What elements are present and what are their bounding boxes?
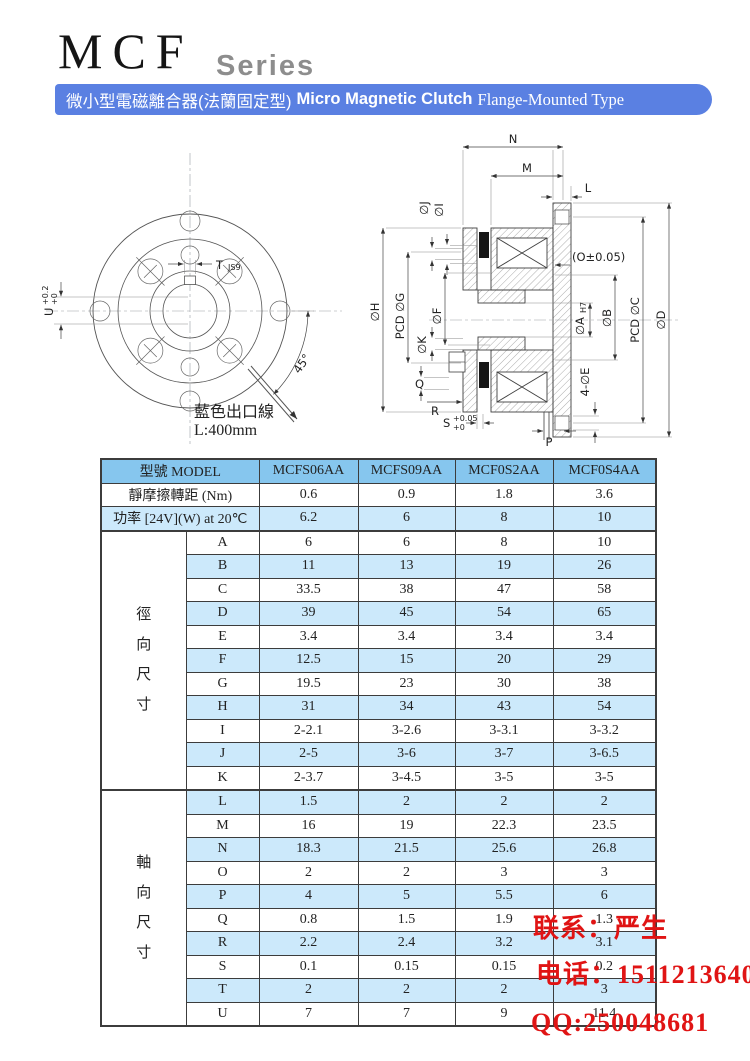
dim-value-cell: 19: [358, 814, 455, 838]
pcd-g-label: PCD ∅G: [393, 293, 407, 339]
spec-value-cell: 10: [553, 507, 656, 531]
dim-value-cell: 3.4: [358, 625, 455, 649]
dim-value-cell: 38: [358, 578, 455, 602]
banner-english-tail: Flange-Mounted Type: [478, 90, 625, 110]
dim-letter-cell: U: [186, 1002, 259, 1026]
spec-value-cell: 3.6: [553, 483, 656, 507]
dim-value-cell: 2: [553, 790, 656, 814]
group-label-cell: 徑向尺寸: [101, 531, 186, 791]
series-label: Series: [216, 50, 315, 83]
dim-value-cell: 47: [455, 578, 553, 602]
dim-value-cell: 30: [455, 672, 553, 696]
dim-letter-cell: M: [186, 814, 259, 838]
product-banner: 微小型電磁離合器(法蘭固定型) Micro Magnetic Clutch Fl…: [55, 84, 712, 115]
dim-value-cell: 33.5: [259, 578, 358, 602]
dim-value-cell: 0.15: [358, 955, 455, 979]
dim-value-cell: 26.8: [553, 838, 656, 862]
s-label: S: [443, 416, 450, 430]
dim-letter-cell: E: [186, 625, 259, 649]
contact-phone-line: 电话：15112136402: [536, 954, 750, 991]
keyway: [185, 276, 196, 285]
dim-value-cell: 0.8: [259, 908, 358, 932]
dim-letter-cell: J: [186, 743, 259, 767]
dim-letter-cell: N: [186, 838, 259, 862]
dim-value-cell: 8: [455, 531, 553, 555]
dim-value-cell: 5.5: [455, 885, 553, 909]
o-note-label: (O±0.05): [572, 250, 625, 264]
dim-value-cell: 2: [455, 790, 553, 814]
dim-value-cell: 2: [358, 790, 455, 814]
q-label: Q: [415, 377, 424, 391]
m-label: M: [522, 161, 532, 175]
page-title: MCF: [58, 22, 194, 80]
dim-value-cell: 25.6: [455, 838, 553, 862]
dim-letter-cell: R: [186, 932, 259, 956]
angle-label-group: 45°: [290, 351, 313, 376]
model-name-cell: MCF0S4AA: [553, 459, 656, 483]
t-label: T: [215, 258, 224, 272]
dia-d-label: ∅D: [654, 310, 668, 329]
contact-name-line: 联系：严生: [533, 908, 668, 945]
spec-value-cell: 6: [358, 507, 455, 531]
dim-value-cell: 0.1: [259, 955, 358, 979]
t-fit-label: JS9: [227, 263, 241, 272]
dim-value-cell: 34: [358, 696, 455, 720]
dim-value-cell: 3-7: [455, 743, 553, 767]
dim-value-cell: 6: [259, 531, 358, 555]
dim-letter-cell: Q: [186, 908, 259, 932]
dim-value-cell: 1.5: [259, 790, 358, 814]
dia-k-label: ∅K: [415, 336, 429, 354]
u-label: U: [42, 308, 56, 316]
dim-value-cell: 13: [358, 555, 455, 579]
dim-value-cell: 16: [259, 814, 358, 838]
dia-i-label: ∅I: [432, 203, 446, 216]
wire-note-line1: 藍色出口線: [194, 403, 274, 421]
dim-value-cell: 2-3.7: [259, 766, 358, 790]
spec-value-cell: 8: [455, 507, 553, 531]
dia-j-label: ∅J: [417, 201, 431, 214]
dim-value-cell: 19.5: [259, 672, 358, 696]
dim-value-cell: 1.5: [358, 908, 455, 932]
dim-value-cell: 3-3.1: [455, 719, 553, 743]
dim-value-cell: 3-4.5: [358, 766, 455, 790]
dim-value-cell: 23: [358, 672, 455, 696]
spec-value-cell: 0.9: [358, 483, 455, 507]
dim-value-cell: 4: [259, 885, 358, 909]
dim-value-cell: 7: [358, 1002, 455, 1026]
datasheet-page: MCF Series 微小型電磁離合器(法蘭固定型) Micro Magneti…: [0, 0, 750, 1061]
dim-value-cell: 20: [455, 649, 553, 673]
dim-value-cell: 3-3.2: [553, 719, 656, 743]
contact-qq-line: QQ:250048681: [531, 1008, 709, 1038]
dim-value-cell: 3-6: [358, 743, 455, 767]
spec-value-cell: 6.2: [259, 507, 358, 531]
dim-value-cell: 2: [259, 979, 358, 1003]
dim-value-cell: 43: [455, 696, 553, 720]
front-view-centerlines: [46, 153, 342, 445]
dim-value-cell: 54: [455, 602, 553, 626]
dia-f-label: ∅F: [430, 308, 444, 325]
dim-value-cell: 3.4: [553, 625, 656, 649]
dim-letter-cell: S: [186, 955, 259, 979]
dim-value-cell: 21.5: [358, 838, 455, 862]
dim-value-cell: 3: [553, 861, 656, 885]
dim-value-cell: 6: [358, 531, 455, 555]
dim-value-cell: 2-5: [259, 743, 358, 767]
wire-note-line2: L:400mm: [194, 422, 258, 439]
dim-value-cell: 2.4: [358, 932, 455, 956]
angle-dimension: [273, 311, 314, 394]
dim-value-cell: 2-2.1: [259, 719, 358, 743]
s-tol-top: +0.05: [453, 414, 478, 423]
dim-value-cell: 54: [553, 696, 656, 720]
dim-letter-cell: D: [186, 602, 259, 626]
spec-label-cell: 靜摩擦轉距 (Nm): [101, 483, 259, 507]
dim-value-cell: 38: [553, 672, 656, 696]
dim-value-cell: 10: [553, 531, 656, 555]
group-label: 徑向尺寸: [102, 608, 186, 713]
r-label: R: [431, 404, 439, 418]
dim-value-cell: 3.4: [259, 625, 358, 649]
dim-value-cell: 2.2: [259, 932, 358, 956]
group-label-cell: 軸向尺寸: [101, 790, 186, 1026]
dim-value-cell: 15: [358, 649, 455, 673]
u-label-group: U +0.2 +0: [41, 286, 59, 316]
front-view-drawing: T JS9 U +0.2 +0 45° 藍色出口線 L:400mm: [42, 133, 347, 448]
dim-letter-cell: L: [186, 790, 259, 814]
section-body: [449, 203, 571, 440]
u-tol-top: +0.2: [41, 286, 50, 305]
dim-value-cell: 45: [358, 602, 455, 626]
dim-value-cell: 3-2.6: [358, 719, 455, 743]
spec-value-cell: 0.6: [259, 483, 358, 507]
banner-chinese-text: 微小型電磁離合器(法蘭固定型): [66, 88, 292, 112]
dim-value-cell: 2: [259, 861, 358, 885]
a-fit-label: H7: [579, 302, 588, 313]
dim-value-cell: 19: [455, 555, 553, 579]
dim-value-cell: 3: [455, 861, 553, 885]
dim-letter-cell: B: [186, 555, 259, 579]
dim-value-cell: 2: [358, 979, 455, 1003]
u-tol-bot: +0: [50, 293, 59, 305]
n-label: N: [509, 132, 518, 146]
dim-letter-cell: I: [186, 719, 259, 743]
model-name-cell: MCFS09AA: [358, 459, 455, 483]
dim-letter-cell: P: [186, 885, 259, 909]
dia-a-label-group: ∅A H7: [573, 302, 588, 335]
e-note-label: 4-∅E: [578, 368, 592, 397]
dim-letter-cell: F: [186, 649, 259, 673]
dim-value-cell: 3.4: [455, 625, 553, 649]
s-tol-bot: +0: [453, 423, 465, 432]
pcd-c-label: PCD ∅C: [628, 297, 642, 343]
p-label: P: [546, 435, 553, 449]
dim-value-cell: 3-5: [553, 766, 656, 790]
model-name-cell: MCF0S2AA: [455, 459, 553, 483]
dim-value-cell: 23.5: [553, 814, 656, 838]
dim-value-cell: 39: [259, 602, 358, 626]
dim-value-cell: 58: [553, 578, 656, 602]
dim-value-cell: 7: [259, 1002, 358, 1026]
dia-h-label: ∅H: [368, 303, 382, 322]
dim-letter-cell: H: [186, 696, 259, 720]
dim-value-cell: 29: [553, 649, 656, 673]
dim-value-cell: 12.5: [259, 649, 358, 673]
dim-value-cell: 18.3: [259, 838, 358, 862]
dia-a-label: ∅A: [573, 317, 587, 335]
dim-letter-cell: O: [186, 861, 259, 885]
model-header-cell: 型號 MODEL: [101, 459, 259, 483]
spec-value-cell: 1.8: [455, 483, 553, 507]
section-view-drawing: N M L ∅J ∅I ∅H PCD ∅G ∅F ∅K Q R S +0.05 …: [373, 130, 733, 450]
dim-value-cell: 3-5: [455, 766, 553, 790]
dim-letter-cell: T: [186, 979, 259, 1003]
dim-letter-cell: C: [186, 578, 259, 602]
dim-value-cell: 6: [553, 885, 656, 909]
dim-value-cell: 5: [358, 885, 455, 909]
dim-letter-cell: G: [186, 672, 259, 696]
dim-letter-cell: A: [186, 531, 259, 555]
dim-value-cell: 65: [553, 602, 656, 626]
angle-label: 45°: [290, 351, 313, 376]
dim-letter-cell: K: [186, 766, 259, 790]
dim-value-cell: 11: [259, 555, 358, 579]
group-label: 軸向尺寸: [102, 856, 186, 961]
l-label: L: [585, 181, 592, 195]
spec-label-cell: 功率 [24V](W) at 20℃: [101, 507, 259, 531]
dim-value-cell: 26: [553, 555, 656, 579]
dim-value-cell: 22.3: [455, 814, 553, 838]
dim-value-cell: 3-6.5: [553, 743, 656, 767]
dim-value-cell: 2: [358, 861, 455, 885]
dia-b-label: ∅B: [600, 309, 614, 327]
model-name-cell: MCFS06AA: [259, 459, 358, 483]
dim-value-cell: 31: [259, 696, 358, 720]
banner-english-bold: Micro Magnetic Clutch: [297, 90, 473, 109]
